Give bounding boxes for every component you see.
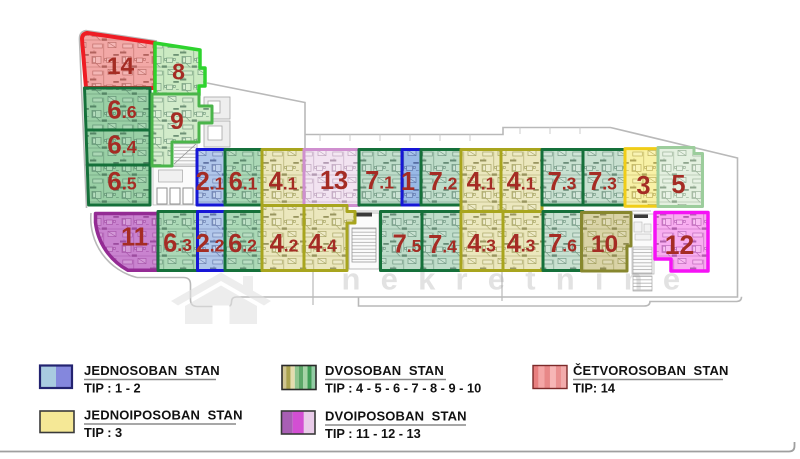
svg-text:14: 14 (107, 53, 135, 80)
svg-text:TIP: 14: TIP: 14 (573, 381, 616, 396)
svg-text:5: 5 (671, 171, 685, 199)
svg-text:ČETVOROSOBAN STAN: ČETVOROSOBAN STAN (573, 363, 729, 378)
svg-text:TIP : 3: TIP : 3 (84, 425, 122, 440)
svg-text:1: 1 (401, 168, 415, 196)
svg-text:JEDNOIPOSOBAN STAN: JEDNOIPOSOBAN STAN (84, 408, 243, 423)
svg-text:3: 3 (636, 172, 650, 200)
svg-text:11: 11 (121, 224, 148, 252)
svg-text:9: 9 (170, 108, 184, 135)
svg-text:DVOSOBAN STAN: DVOSOBAN STAN (325, 363, 444, 378)
svg-text:TIP : 4 - 5 - 6 - 7 - 8 - 9 -: TIP : 4 - 5 - 6 - 7 - 8 - 9 - 10 (325, 381, 481, 396)
svg-text:TIP : 11 - 12 - 13: TIP : 11 - 12 - 13 (325, 426, 421, 441)
svg-text:DVOIPOSOBAN STAN: DVOIPOSOBAN STAN (325, 409, 467, 424)
svg-text:10: 10 (591, 231, 618, 258)
svg-text:13: 13 (320, 167, 348, 195)
svg-text:8: 8 (172, 59, 185, 85)
svg-text:12: 12 (665, 230, 694, 260)
svg-text:TIP : 1 - 2: TIP : 1 - 2 (84, 381, 141, 396)
svg-text:JEDNOSOBAN STAN: JEDNOSOBAN STAN (84, 363, 220, 378)
